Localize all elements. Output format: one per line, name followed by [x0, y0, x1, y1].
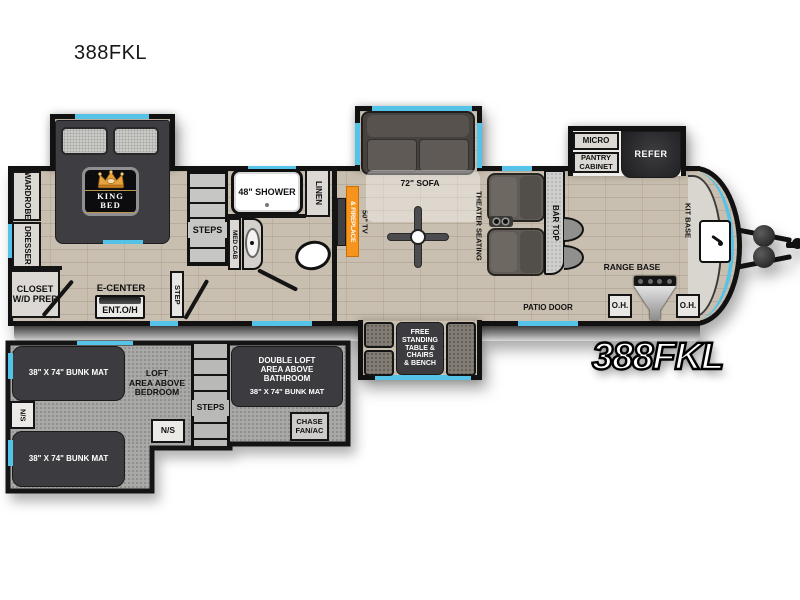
double-loft-bunk: DOUBLE LOFT AREA ABOVE BATHROOM 38" X 74… [231, 346, 343, 407]
model-badge: 388FKL [592, 336, 723, 379]
window [77, 341, 133, 345]
double-loft-bunk-label: 38" X 74" BUNK MAT [250, 388, 325, 396]
loft-steps-label: STEPS [197, 403, 225, 413]
loft-outline [0, 0, 800, 600]
double-loft-label: DOUBLE LOFT AREA ABOVE BATHROOM [259, 357, 316, 384]
bunk-bottom-label: 38" X 74" BUNK MAT [29, 455, 108, 464]
loft-steps [191, 344, 230, 446]
loft-bunk-bottom: 38" X 74" BUNK MAT [12, 431, 125, 487]
nightstand: N/S [151, 419, 185, 443]
loft-area-label: LOFT AREA ABOVE BEDROOM [120, 369, 194, 398]
window [8, 353, 13, 379]
loft-bunk-top: 38" X 74" BUNK MAT [12, 346, 125, 401]
bunk-top-label: 38" X 74" BUNK MAT [29, 369, 108, 378]
chase-label: CHASE FAN/AC [296, 418, 324, 435]
loft-steps-label-box: STEPS [192, 400, 229, 416]
window [8, 440, 13, 466]
nightstand: N/S [10, 401, 35, 429]
chase-fan-ac: CHASE FAN/AC [290, 412, 329, 441]
ns-left-label: N/S [18, 409, 26, 422]
floorplan-canvas: 388FKL [0, 0, 800, 600]
loft-floorplan: 38" X 74" BUNK MAT 38" X 74" BUNK MAT N/… [0, 0, 800, 600]
ns-mid-label: N/S [161, 426, 175, 436]
